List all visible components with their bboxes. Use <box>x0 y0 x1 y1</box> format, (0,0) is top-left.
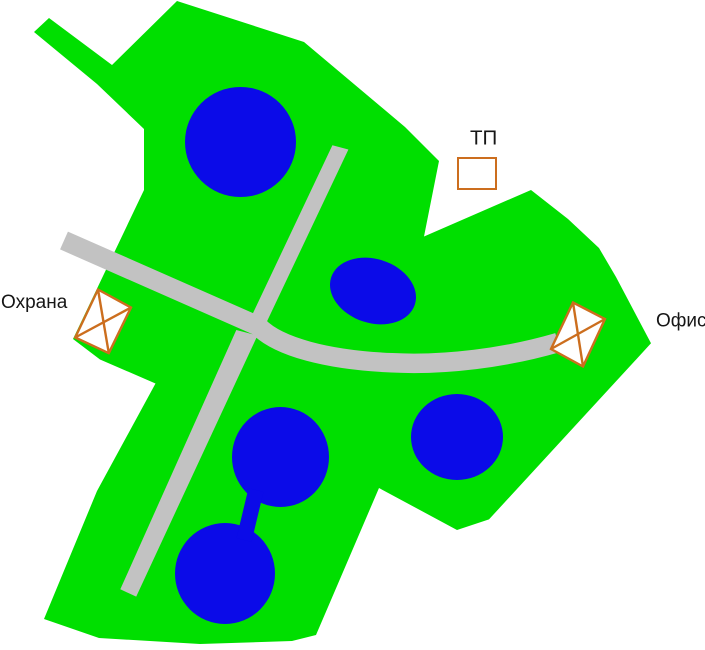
svg-text:Офис: Офис <box>656 311 705 332</box>
svg-text:ТП: ТП <box>470 127 497 150</box>
svg-text:Охрана: Охрана <box>1 292 68 313</box>
